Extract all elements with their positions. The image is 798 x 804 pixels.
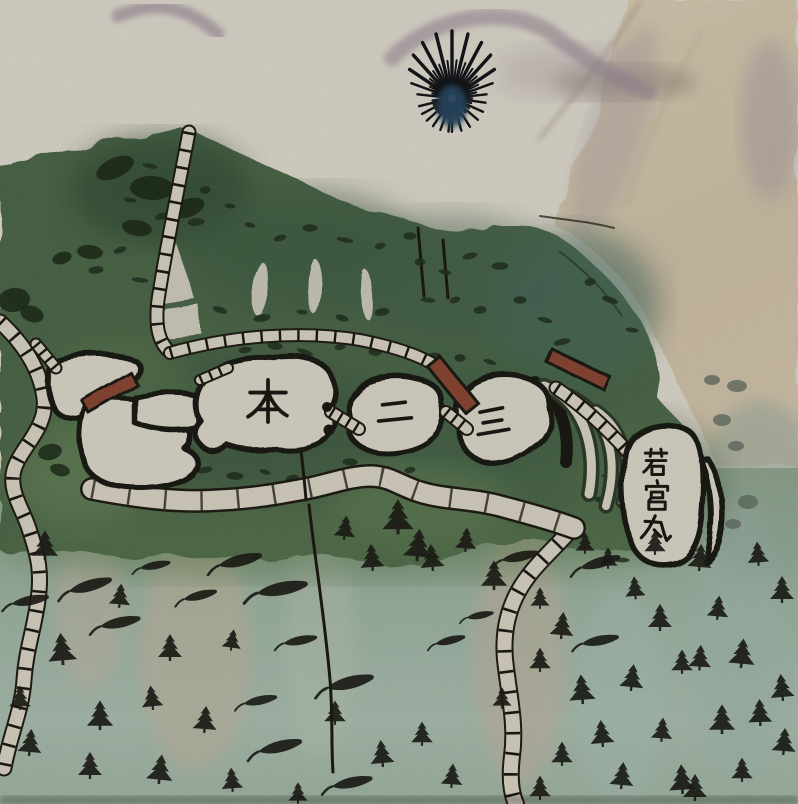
castle-map-painting — [0, 0, 798, 804]
bottom-shadow — [0, 796, 798, 804]
paper-grain — [0, 0, 798, 804]
painting-canvas — [0, 0, 798, 804]
